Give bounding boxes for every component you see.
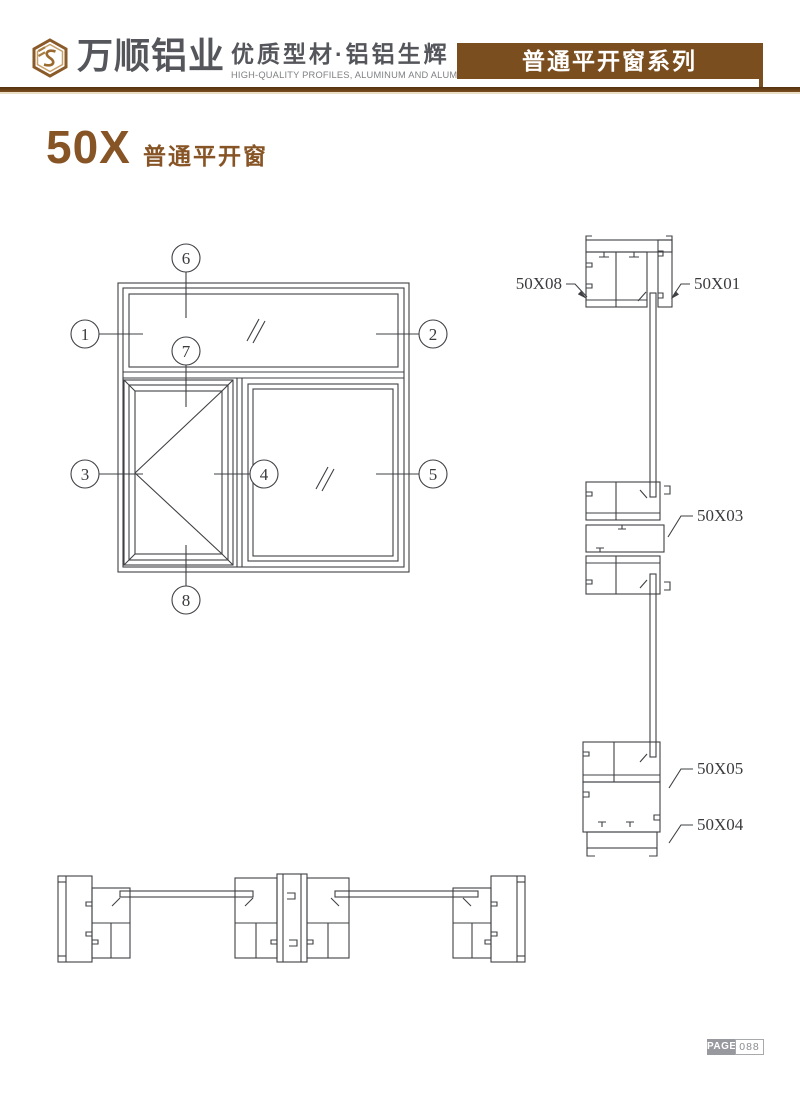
page-label: PAGE [707,1039,735,1055]
callout-5: 5 [429,465,438,484]
label-50x03: 50X03 [697,506,743,525]
callout-6: 6 [182,249,191,268]
label-50x08: 50X08 [516,274,562,293]
page-number: 088 [735,1039,764,1055]
profile-section-head [586,236,672,307]
technical-drawing: 1 2 3 4 5 6 7 8 [0,0,800,1093]
callout-7: 7 [182,342,191,361]
label-50x01: 50X01 [694,274,740,293]
callout-4: 4 [260,465,269,484]
callout-1: 1 [81,325,90,344]
page-badge: PAGE 088 [707,1039,764,1055]
window-elevation [118,283,409,572]
glass-pane-lower [650,574,656,757]
profile-section-mid [586,482,670,594]
profile-bottom-right [453,876,525,962]
glass-pane-left [120,891,253,897]
profile-bottom-center [235,874,349,962]
callout-2: 2 [429,325,438,344]
callout-8: 8 [182,591,191,610]
glass-pane-right [335,891,478,897]
catalog-page: 万顺铝业 优质型材·铝铝生辉 HIGH-QUALITY PROFILES, AL… [0,0,800,1093]
profile-bottom-left [58,876,130,962]
glass-pane-upper [650,293,656,497]
vertical-section: 50X08 50X01 50X03 50X05 50X04 [516,236,744,856]
horizontal-section [58,874,525,962]
profile-section-sill [583,742,660,856]
callout-3: 3 [81,465,90,484]
label-50x04: 50X04 [697,815,744,834]
label-50x05: 50X05 [697,759,743,778]
elevation-callouts: 1 2 3 4 5 6 7 8 [71,244,447,614]
